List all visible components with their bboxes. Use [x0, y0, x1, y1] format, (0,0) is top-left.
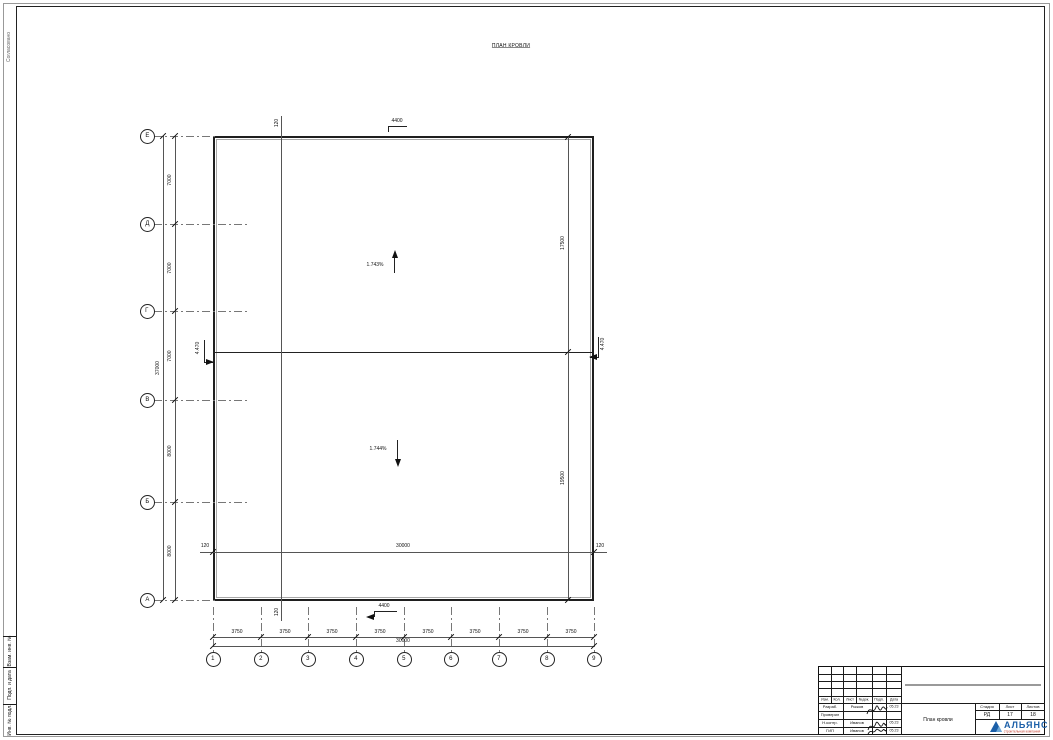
- tb-line: [856, 666, 857, 703]
- designation-line: [905, 684, 1041, 686]
- col-axis-label: 7: [497, 656, 500, 662]
- row-axis-label: Г: [145, 308, 148, 314]
- col-axis-bubble: 3: [301, 652, 316, 667]
- row-axis-line: [154, 502, 248, 503]
- stage-value: РД: [984, 713, 990, 718]
- bottom-dim-label: 3750: [469, 630, 480, 635]
- bottom-overall-dim-label: 30000: [396, 639, 410, 644]
- row-axis-line: [154, 400, 248, 401]
- col-axis-label: 6: [449, 656, 452, 662]
- stage-header: Стадия: [980, 705, 994, 709]
- drawing-sheet: Взам. инв. № Подп. и дата Инв. № подл. С…: [0, 0, 1053, 740]
- col-axis-label: 5: [402, 656, 405, 662]
- row-axis-line: [154, 311, 248, 312]
- row-axis-label: Б: [145, 499, 149, 505]
- tb-line: [843, 666, 844, 735]
- col-axis-bubble: 4: [349, 652, 364, 667]
- logo-subtitle: строительная компания: [1004, 730, 1041, 733]
- tb-line: [999, 703, 1000, 719]
- col-axis-bubble: 6: [444, 652, 459, 667]
- tb-line: [831, 666, 832, 703]
- axes-layer: ЕДГВБА7000700070008000800037000123456789…: [0, 0, 1053, 740]
- col-axis-label: 9: [592, 656, 595, 662]
- bottom-dim-label: 3750: [374, 630, 385, 635]
- row-axis-bubble: Г: [140, 304, 155, 319]
- row-axis-bubble: А: [140, 593, 155, 608]
- doc-title: План кровли: [923, 718, 952, 723]
- left-dim-label: 8000: [168, 445, 173, 456]
- col-axis-label: 1: [211, 656, 214, 662]
- stage-header: Листов: [1027, 705, 1040, 709]
- bottom-overall-dim-line: [213, 646, 594, 647]
- bottom-dim-label: 3750: [517, 630, 528, 635]
- tb-line: [818, 711, 901, 712]
- col-axis-label: 2: [259, 656, 262, 662]
- sheets-total: 18: [1030, 713, 1036, 718]
- tb-line: [818, 719, 901, 720]
- logo-name: АЛЬЯНС: [1004, 721, 1049, 730]
- left-overall-dim-line: [163, 136, 164, 600]
- col-axis-bubble: 9: [587, 652, 602, 667]
- tb-line: [1021, 703, 1022, 719]
- sheet-number: 17: [1007, 713, 1013, 718]
- row-axis-label: Е: [145, 133, 149, 139]
- left-dim-label: 7000: [168, 174, 173, 185]
- bottom-dim-label: 3750: [326, 630, 337, 635]
- tb-line: [901, 666, 902, 735]
- left-dim-label: 8000: [168, 545, 173, 556]
- bottom-dim-label: 3750: [279, 630, 290, 635]
- col-axis-label: 3: [306, 656, 309, 662]
- col-axis-bubble: 1: [206, 652, 221, 667]
- row-axis-label: А: [145, 597, 149, 603]
- row-axis-bubble: Д: [140, 217, 155, 232]
- col-axis-bubble: 2: [254, 652, 269, 667]
- col-axis-bubble: 5: [397, 652, 412, 667]
- row-axis-line: [154, 224, 248, 225]
- row-axis-bubble: В: [140, 393, 155, 408]
- signature-scribble: [867, 727, 887, 736]
- bottom-dim-label: 3750: [565, 630, 576, 635]
- signature-scribble: [866, 702, 888, 718]
- stage-header: Лист: [1006, 705, 1015, 709]
- col-axis-label: 4: [354, 656, 357, 662]
- left-dim-label: 7000: [168, 350, 173, 361]
- left-dim-label: 7000: [168, 262, 173, 273]
- row-axis-label: Д: [145, 221, 149, 227]
- bottom-dim-label: 3750: [231, 630, 242, 635]
- row-axis-bubble: Е: [140, 129, 155, 144]
- left-dim-chain-line: [175, 136, 176, 600]
- tb-line: [818, 727, 901, 728]
- bottom-dim-label: 3750: [422, 630, 433, 635]
- col-axis-label: 8: [545, 656, 548, 662]
- logo-triangle-shade-icon: [996, 726, 1002, 732]
- col-axis-bubble: 7: [492, 652, 507, 667]
- col-axis-bubble: 8: [540, 652, 555, 667]
- tb-line: [975, 710, 1045, 711]
- left-overall-dim-label: 37000: [156, 361, 161, 375]
- row-axis-bubble: Б: [140, 495, 155, 510]
- row-axis-label: В: [145, 397, 149, 403]
